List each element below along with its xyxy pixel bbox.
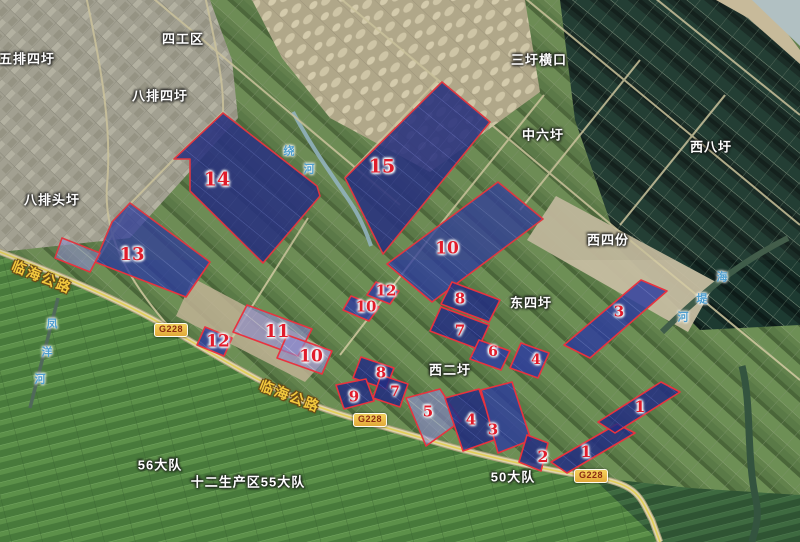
tone-overlay — [0, 0, 800, 260]
satellite-map-canvas[interactable] — [0, 0, 800, 542]
satellite-map-viewport[interactable]: 14151310121087643111210897543211五排四圩四工区八… — [0, 0, 800, 542]
